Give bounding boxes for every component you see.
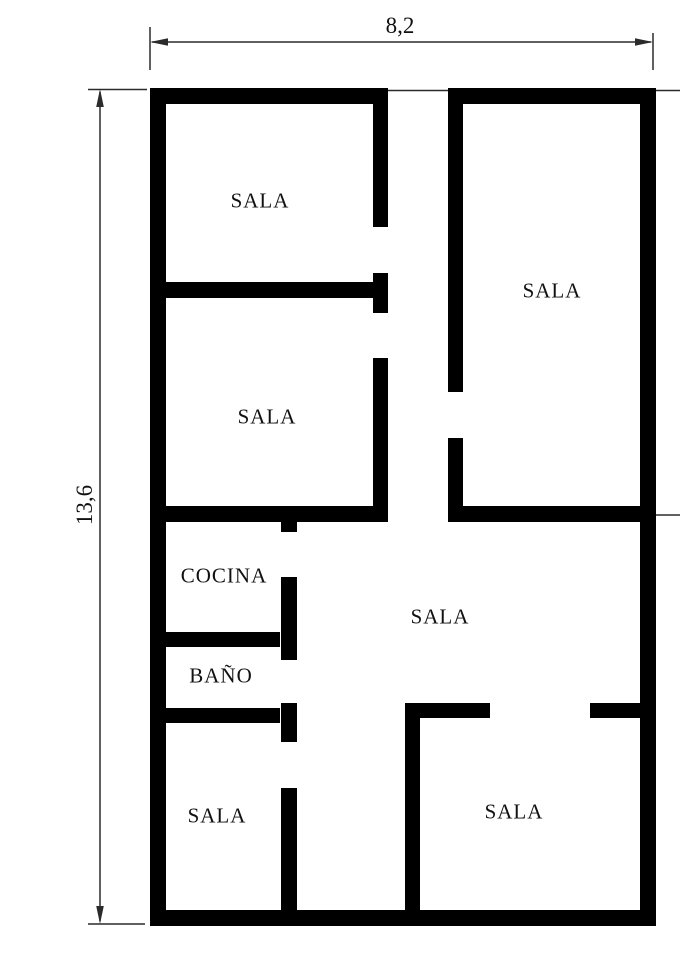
room-label-sala-center: SALA	[411, 605, 470, 630]
arrowhead-right	[635, 38, 653, 46]
room-label-sala-top-left: SALA	[231, 189, 290, 214]
wall-outer-left	[150, 88, 166, 926]
wall-segment	[166, 282, 388, 298]
wall-segment	[281, 577, 297, 660]
room-label-sala-bottom-left: SALA	[188, 804, 247, 829]
wall-segment	[405, 703, 490, 718]
wall-segment	[373, 358, 388, 521]
wall-segment	[281, 703, 297, 742]
wall-segment	[166, 708, 280, 723]
arrowhead-up	[96, 89, 104, 107]
arrowhead-left	[150, 38, 168, 46]
arrowhead-down	[96, 906, 104, 924]
room-label-sala-mid-left: SALA	[238, 405, 297, 430]
wall-segment	[373, 104, 388, 227]
wall-outer-top-b	[448, 88, 656, 104]
wall-segment	[281, 506, 297, 532]
wall-segment	[281, 788, 297, 926]
wall-segment	[448, 104, 463, 392]
wall-segment	[448, 506, 640, 522]
room-label-sala-top-right: SALA	[523, 279, 582, 304]
wall-outer-top-a	[150, 88, 388, 104]
floor-plan-canvas: 8,2 13,6 SALA SALA SALA COCINA BAÑO SALA…	[0, 0, 680, 976]
wall-segment	[405, 703, 420, 926]
wall-outer-bottom	[150, 910, 656, 926]
room-label-sala-bottom-right: SALA	[485, 800, 544, 825]
dimension-height-value: 13,6	[72, 485, 98, 525]
wall-segment	[166, 632, 280, 647]
wall-outer-right	[640, 88, 656, 926]
floor-plan-drawing	[0, 0, 680, 976]
room-label-cocina: COCINA	[181, 564, 268, 589]
room-label-bano: BAÑO	[189, 664, 253, 689]
walls-layer	[150, 88, 656, 926]
wall-segment	[166, 506, 388, 522]
dimension-width-value: 8,2	[386, 13, 415, 39]
wall-segment	[590, 703, 656, 718]
